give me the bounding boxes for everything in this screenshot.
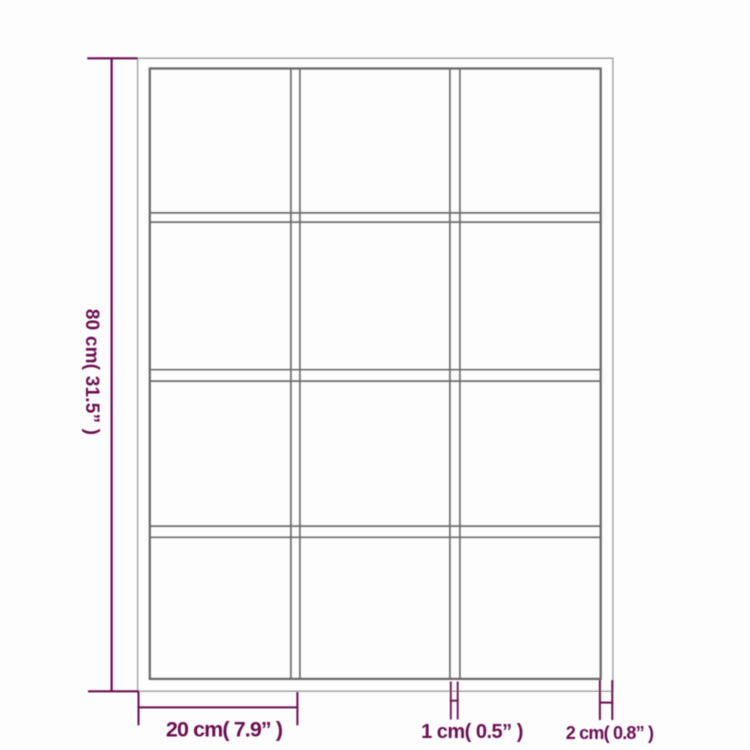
svg-text:80 cm( 31.5” ): 80 cm( 31.5” ) — [81, 309, 102, 435]
svg-text:2 cm( 0.8” ): 2 cm( 0.8” ) — [566, 723, 654, 743]
svg-text:1 cm( 0.5” ): 1 cm( 0.5” ) — [421, 721, 523, 743]
svg-text:20 cm( 7.9” ): 20 cm( 7.9” ) — [166, 718, 283, 742]
